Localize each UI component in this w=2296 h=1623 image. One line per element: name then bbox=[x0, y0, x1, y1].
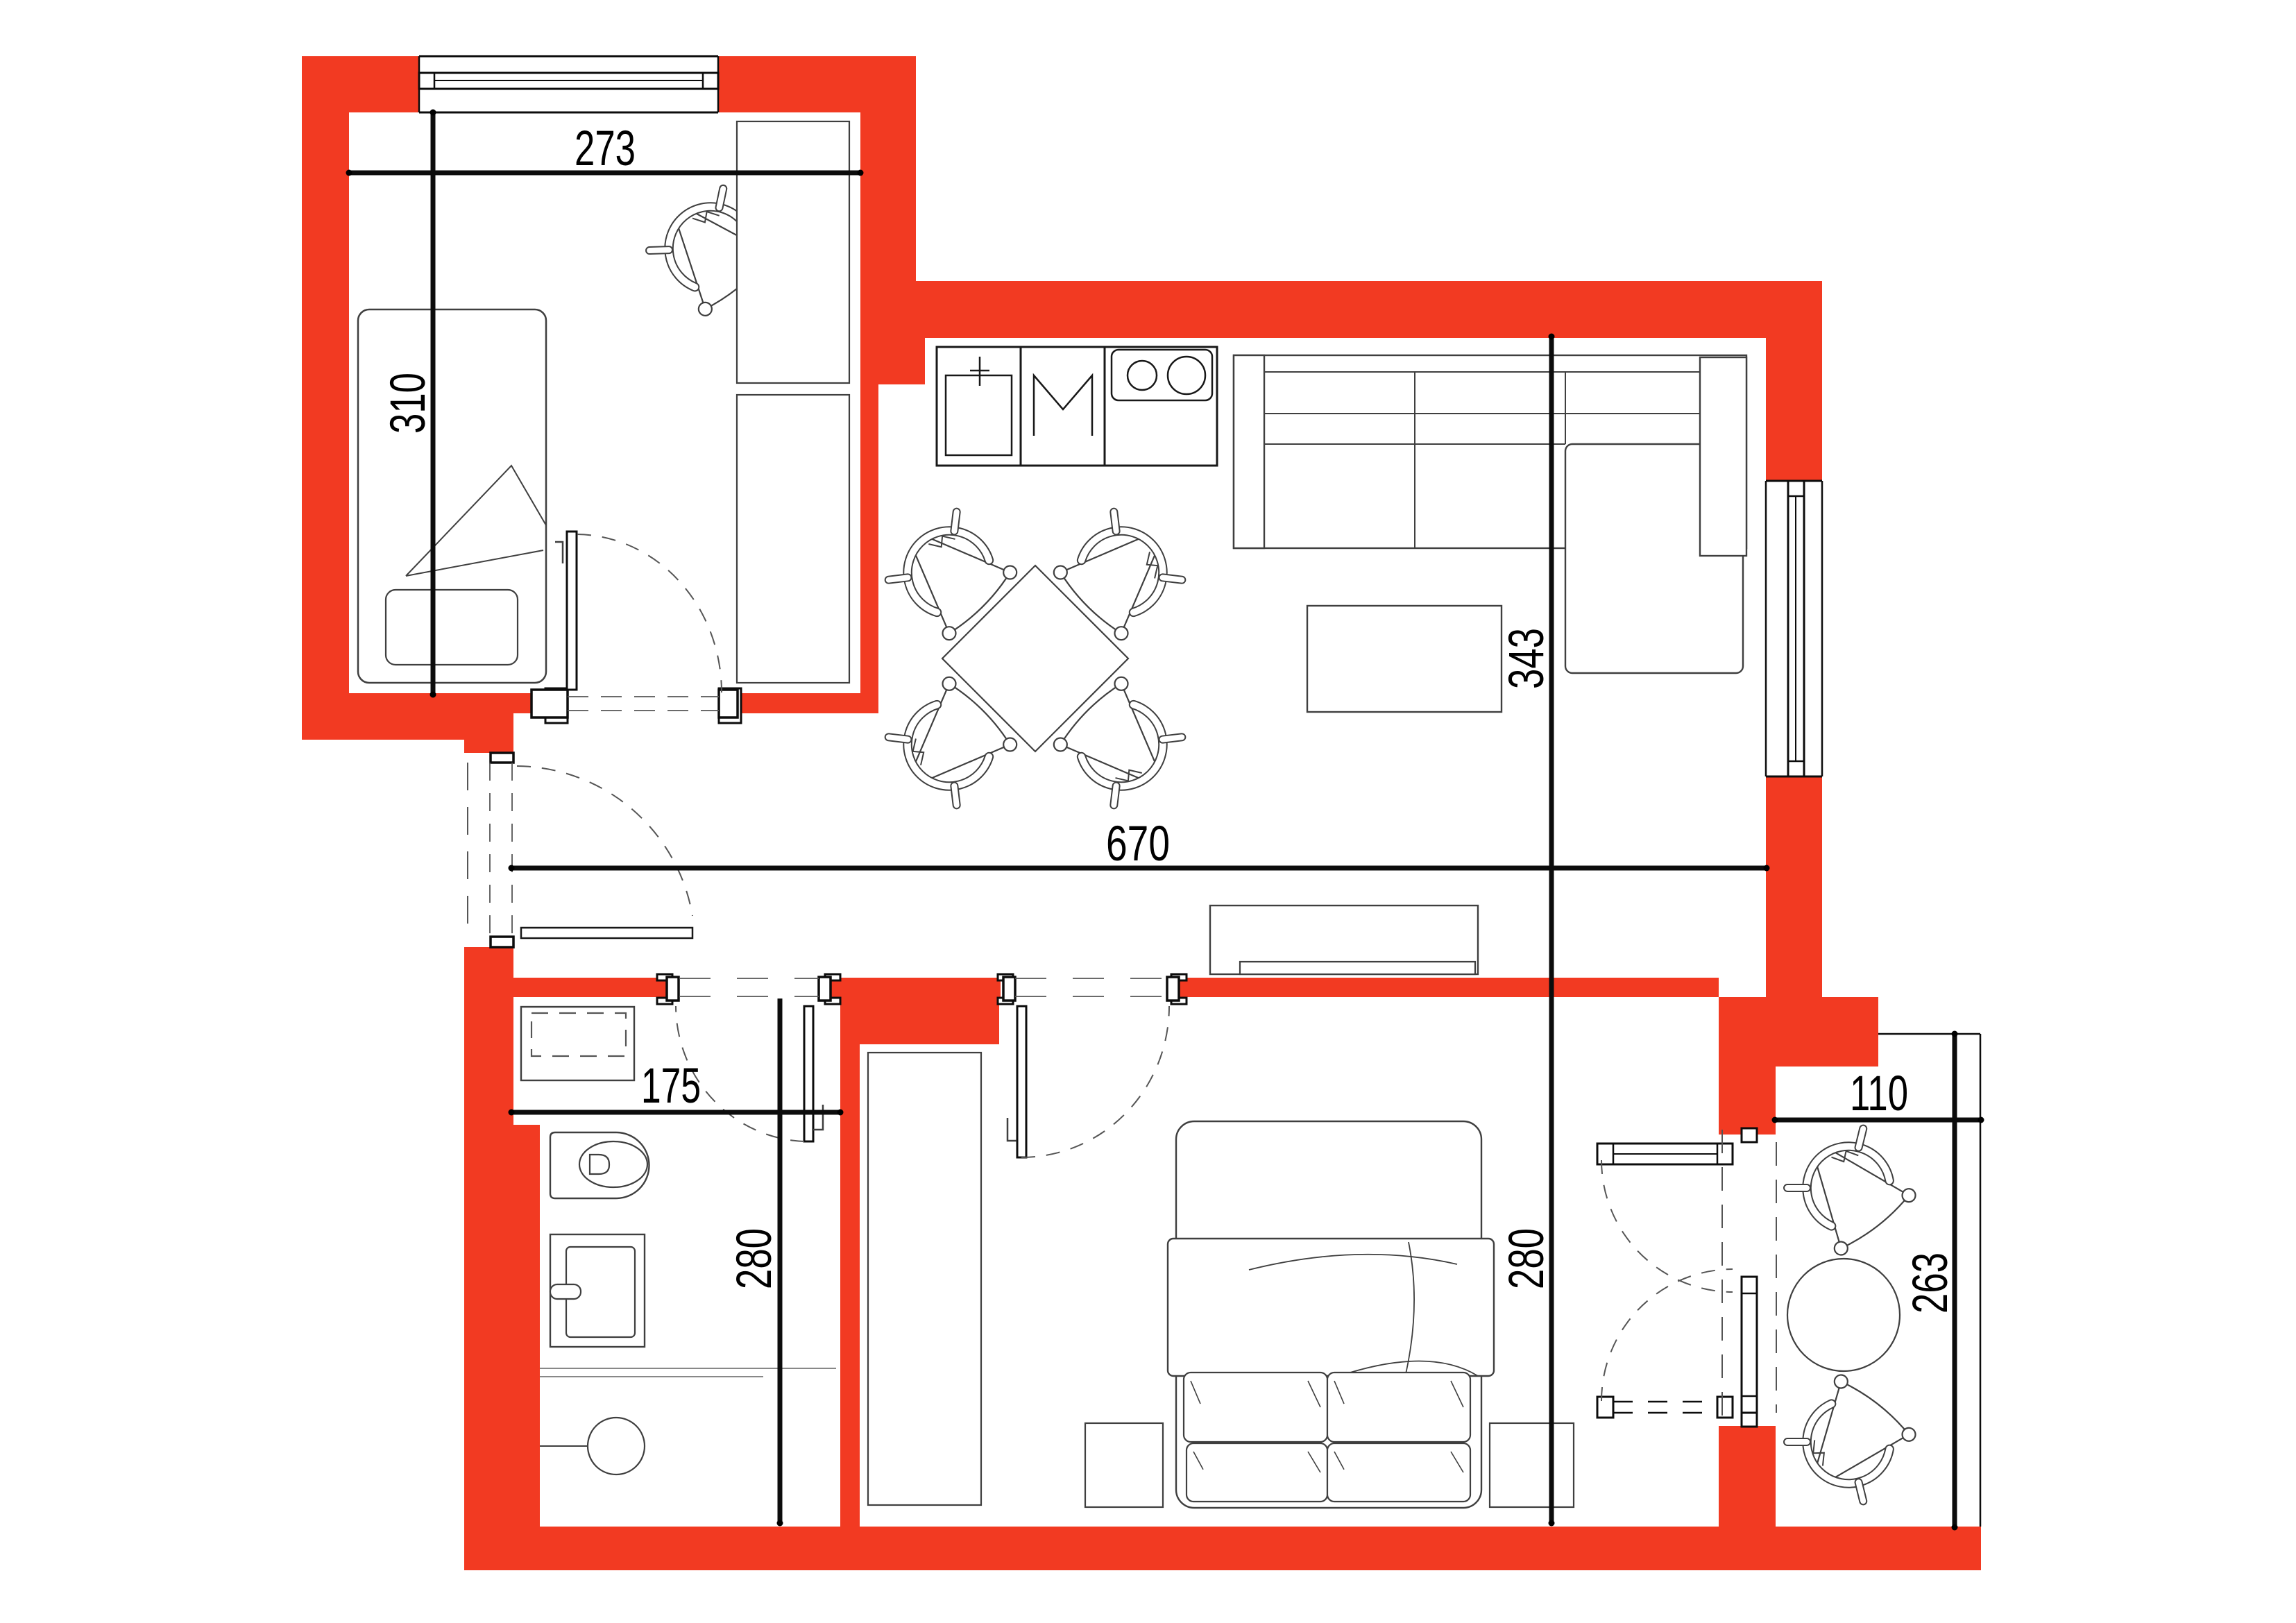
svg-text:280: 280 bbox=[727, 1228, 782, 1289]
svg-text:273: 273 bbox=[575, 121, 636, 176]
svg-text:670: 670 bbox=[1106, 817, 1170, 872]
svg-text:175: 175 bbox=[641, 1059, 701, 1114]
svg-text:310: 310 bbox=[381, 373, 436, 434]
svg-text:263: 263 bbox=[1903, 1252, 1958, 1314]
svg-text:343: 343 bbox=[1499, 628, 1554, 689]
svg-text:110: 110 bbox=[1850, 1067, 1908, 1121]
svg-text:280: 280 bbox=[1499, 1228, 1554, 1289]
